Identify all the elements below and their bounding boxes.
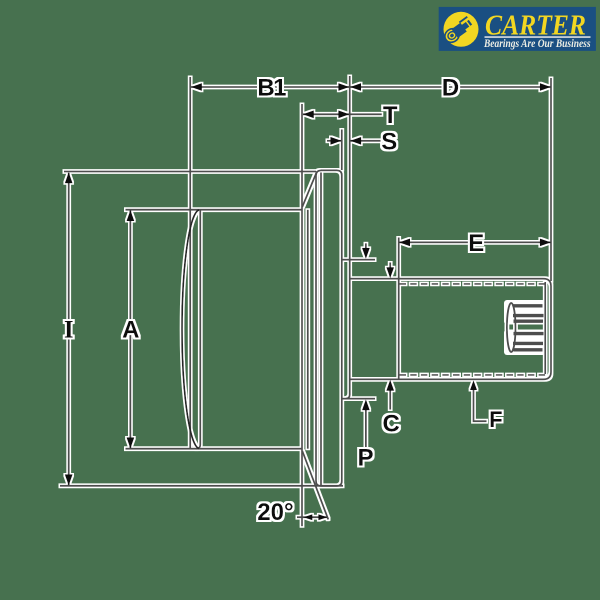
svg-text:F: F [489, 407, 502, 432]
svg-text:A: A [122, 317, 139, 344]
svg-text:Bearings Are Our Business: Bearings Are Our Business [483, 38, 591, 50]
svg-text:P: P [357, 444, 373, 471]
svg-text:E: E [468, 230, 484, 257]
svg-text:B1: B1 [257, 75, 286, 102]
svg-text:20°: 20° [257, 499, 293, 526]
svg-text:T: T [383, 102, 398, 129]
svg-text:C: C [383, 410, 400, 437]
svg-text:D: D [442, 75, 459, 102]
svg-text:I: I [64, 317, 74, 344]
svg-text:S: S [381, 129, 397, 156]
